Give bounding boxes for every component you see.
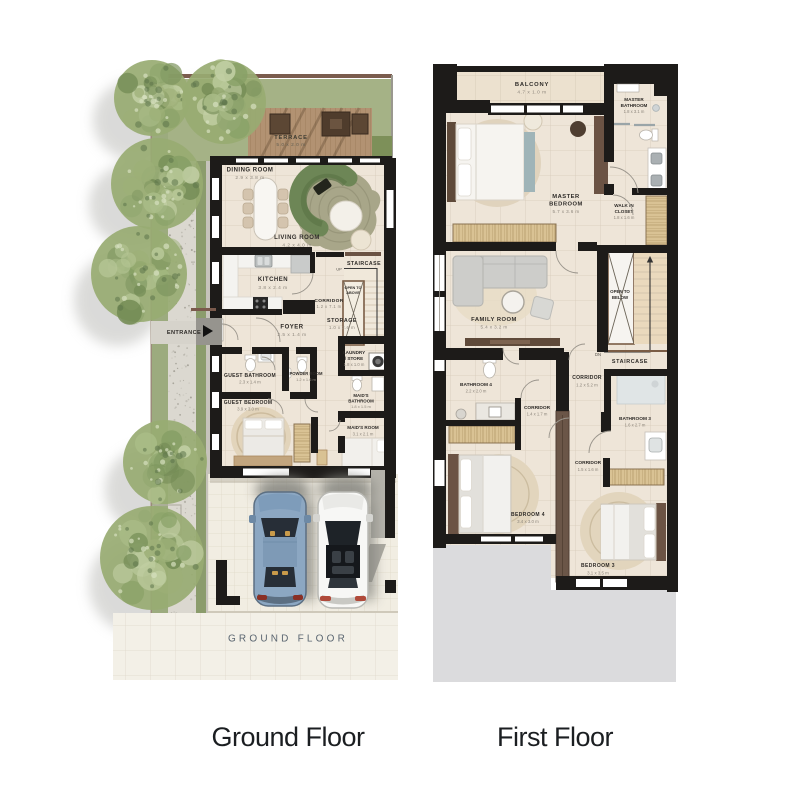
svg-text:1.8 x 1.0 m: 1.8 x 1.0 m xyxy=(344,362,365,367)
svg-text:Ground Floor: Ground Floor xyxy=(211,722,365,752)
svg-text:2.2 x 2.0 m: 2.2 x 2.0 m xyxy=(466,389,487,394)
svg-text:MASTER: MASTER xyxy=(552,194,580,200)
svg-text:1.8 x 1.6 m: 1.8 x 1.6 m xyxy=(614,215,635,220)
svg-text:STAIRCASE: STAIRCASE xyxy=(612,359,648,365)
svg-text:GUEST BATHROOM: GUEST BATHROOM xyxy=(224,373,276,379)
svg-text:1.8 x 1.5 m: 1.8 x 1.5 m xyxy=(351,404,371,409)
svg-text:5.0 x 2.0 m: 5.0 x 2.0 m xyxy=(276,142,305,148)
svg-text:1.6 x 2.7 m: 1.6 x 2.7 m xyxy=(625,423,646,428)
svg-text:4.7 x 1.0 m: 4.7 x 1.0 m xyxy=(517,90,546,96)
svg-text:GUEST BEDROOM: GUEST BEDROOM xyxy=(224,400,273,406)
svg-text:UP: UP xyxy=(336,267,342,272)
svg-text:3.9 x 3.0 m: 3.9 x 3.0 m xyxy=(237,407,259,412)
svg-text:/ STORE: / STORE xyxy=(345,356,363,361)
svg-text:DINING ROOM: DINING ROOM xyxy=(227,168,274,174)
svg-text:DN: DN xyxy=(595,352,601,357)
svg-text:5.4 x 3.2 m: 5.4 x 3.2 m xyxy=(480,325,507,330)
svg-text:STORAGE: STORAGE xyxy=(327,318,357,324)
svg-text:ABOVE: ABOVE xyxy=(346,291,360,295)
svg-text:2.3 x 1.4 m: 2.3 x 1.4 m xyxy=(239,380,261,385)
svg-text:LIVING ROOM: LIVING ROOM xyxy=(274,235,320,241)
svg-text:MAID'S ROOM: MAID'S ROOM xyxy=(347,425,379,430)
svg-text:3.8 x 2.4 m: 3.8 x 2.4 m xyxy=(258,285,287,291)
svg-text:GROUND FLOOR: GROUND FLOOR xyxy=(228,634,348,645)
svg-text:3.1 x 2.1 m: 3.1 x 2.1 m xyxy=(353,432,374,437)
svg-text:CORRIDOR: CORRIDOR xyxy=(575,460,602,466)
svg-text:POWDER ROOM: POWDER ROOM xyxy=(289,371,323,376)
svg-text:First Floor: First Floor xyxy=(497,722,614,752)
svg-text:MASTER: MASTER xyxy=(624,97,644,102)
svg-text:BATHROOM: BATHROOM xyxy=(621,103,648,108)
svg-text:BATHROOM: BATHROOM xyxy=(348,399,374,404)
svg-text:KITCHEN: KITCHEN xyxy=(258,277,288,283)
svg-text:CLOSET: CLOSET xyxy=(615,209,634,214)
svg-text:FAMILY ROOM: FAMILY ROOM xyxy=(471,317,517,323)
svg-text:BEDROOM 3: BEDROOM 3 xyxy=(581,563,615,569)
svg-text:ENTRANCE: ENTRANCE xyxy=(167,330,201,336)
svg-text:1.8 x 3.1 m: 1.8 x 3.1 m xyxy=(624,109,645,114)
svg-text:FOYER: FOYER xyxy=(280,325,303,331)
svg-text:3.4 x 3.0 m: 3.4 x 3.0 m xyxy=(517,519,539,524)
svg-text:5.7 x 3.6 m: 5.7 x 3.6 m xyxy=(552,209,579,214)
svg-text:2.5 x 1.4 m: 2.5 x 1.4 m xyxy=(277,332,306,338)
svg-text:BATHROOM 3: BATHROOM 3 xyxy=(619,416,651,422)
svg-text:CORRIDOR: CORRIDOR xyxy=(572,375,602,381)
svg-text:LAUNDRY: LAUNDRY xyxy=(343,350,365,355)
svg-text:BEDROOM 4: BEDROOM 4 xyxy=(511,512,545,518)
svg-text:1.5 x 1.6 m: 1.5 x 1.6 m xyxy=(578,467,599,472)
svg-text:STAIRCASE: STAIRCASE xyxy=(347,261,381,267)
svg-text:4.2 x 4.0 m: 4.2 x 4.0 m xyxy=(282,243,311,249)
svg-text:1.2 x 7.1 m: 1.2 x 7.1 m xyxy=(316,304,341,309)
svg-text:OPEN TO: OPEN TO xyxy=(344,286,361,290)
svg-text:3.1 x 3.5 m: 3.1 x 3.5 m xyxy=(587,571,609,576)
svg-text:TERRACE: TERRACE xyxy=(274,135,308,141)
svg-text:BELOW: BELOW xyxy=(612,295,629,300)
svg-text:MAID'S: MAID'S xyxy=(353,393,368,398)
svg-text:1.0 x 2.6 m: 1.0 x 2.6 m xyxy=(329,325,355,330)
svg-text:1.2 x 1.6 m: 1.2 x 1.6 m xyxy=(296,377,316,382)
svg-text:CORRIDOR: CORRIDOR xyxy=(524,405,551,411)
svg-text:OPEN TO: OPEN TO xyxy=(610,289,630,294)
svg-text:1.4 x 1.7 m: 1.4 x 1.7 m xyxy=(527,412,548,417)
svg-text:BEDROOM: BEDROOM xyxy=(549,202,583,208)
svg-text:BALCONY: BALCONY xyxy=(515,82,549,88)
svg-text:BATHROOM 4: BATHROOM 4 xyxy=(460,382,492,388)
svg-text:1.2 x 5.2 m: 1.2 x 5.2 m xyxy=(576,383,598,388)
svg-text:2.9 x 3.8 m: 2.9 x 3.8 m xyxy=(235,175,264,181)
